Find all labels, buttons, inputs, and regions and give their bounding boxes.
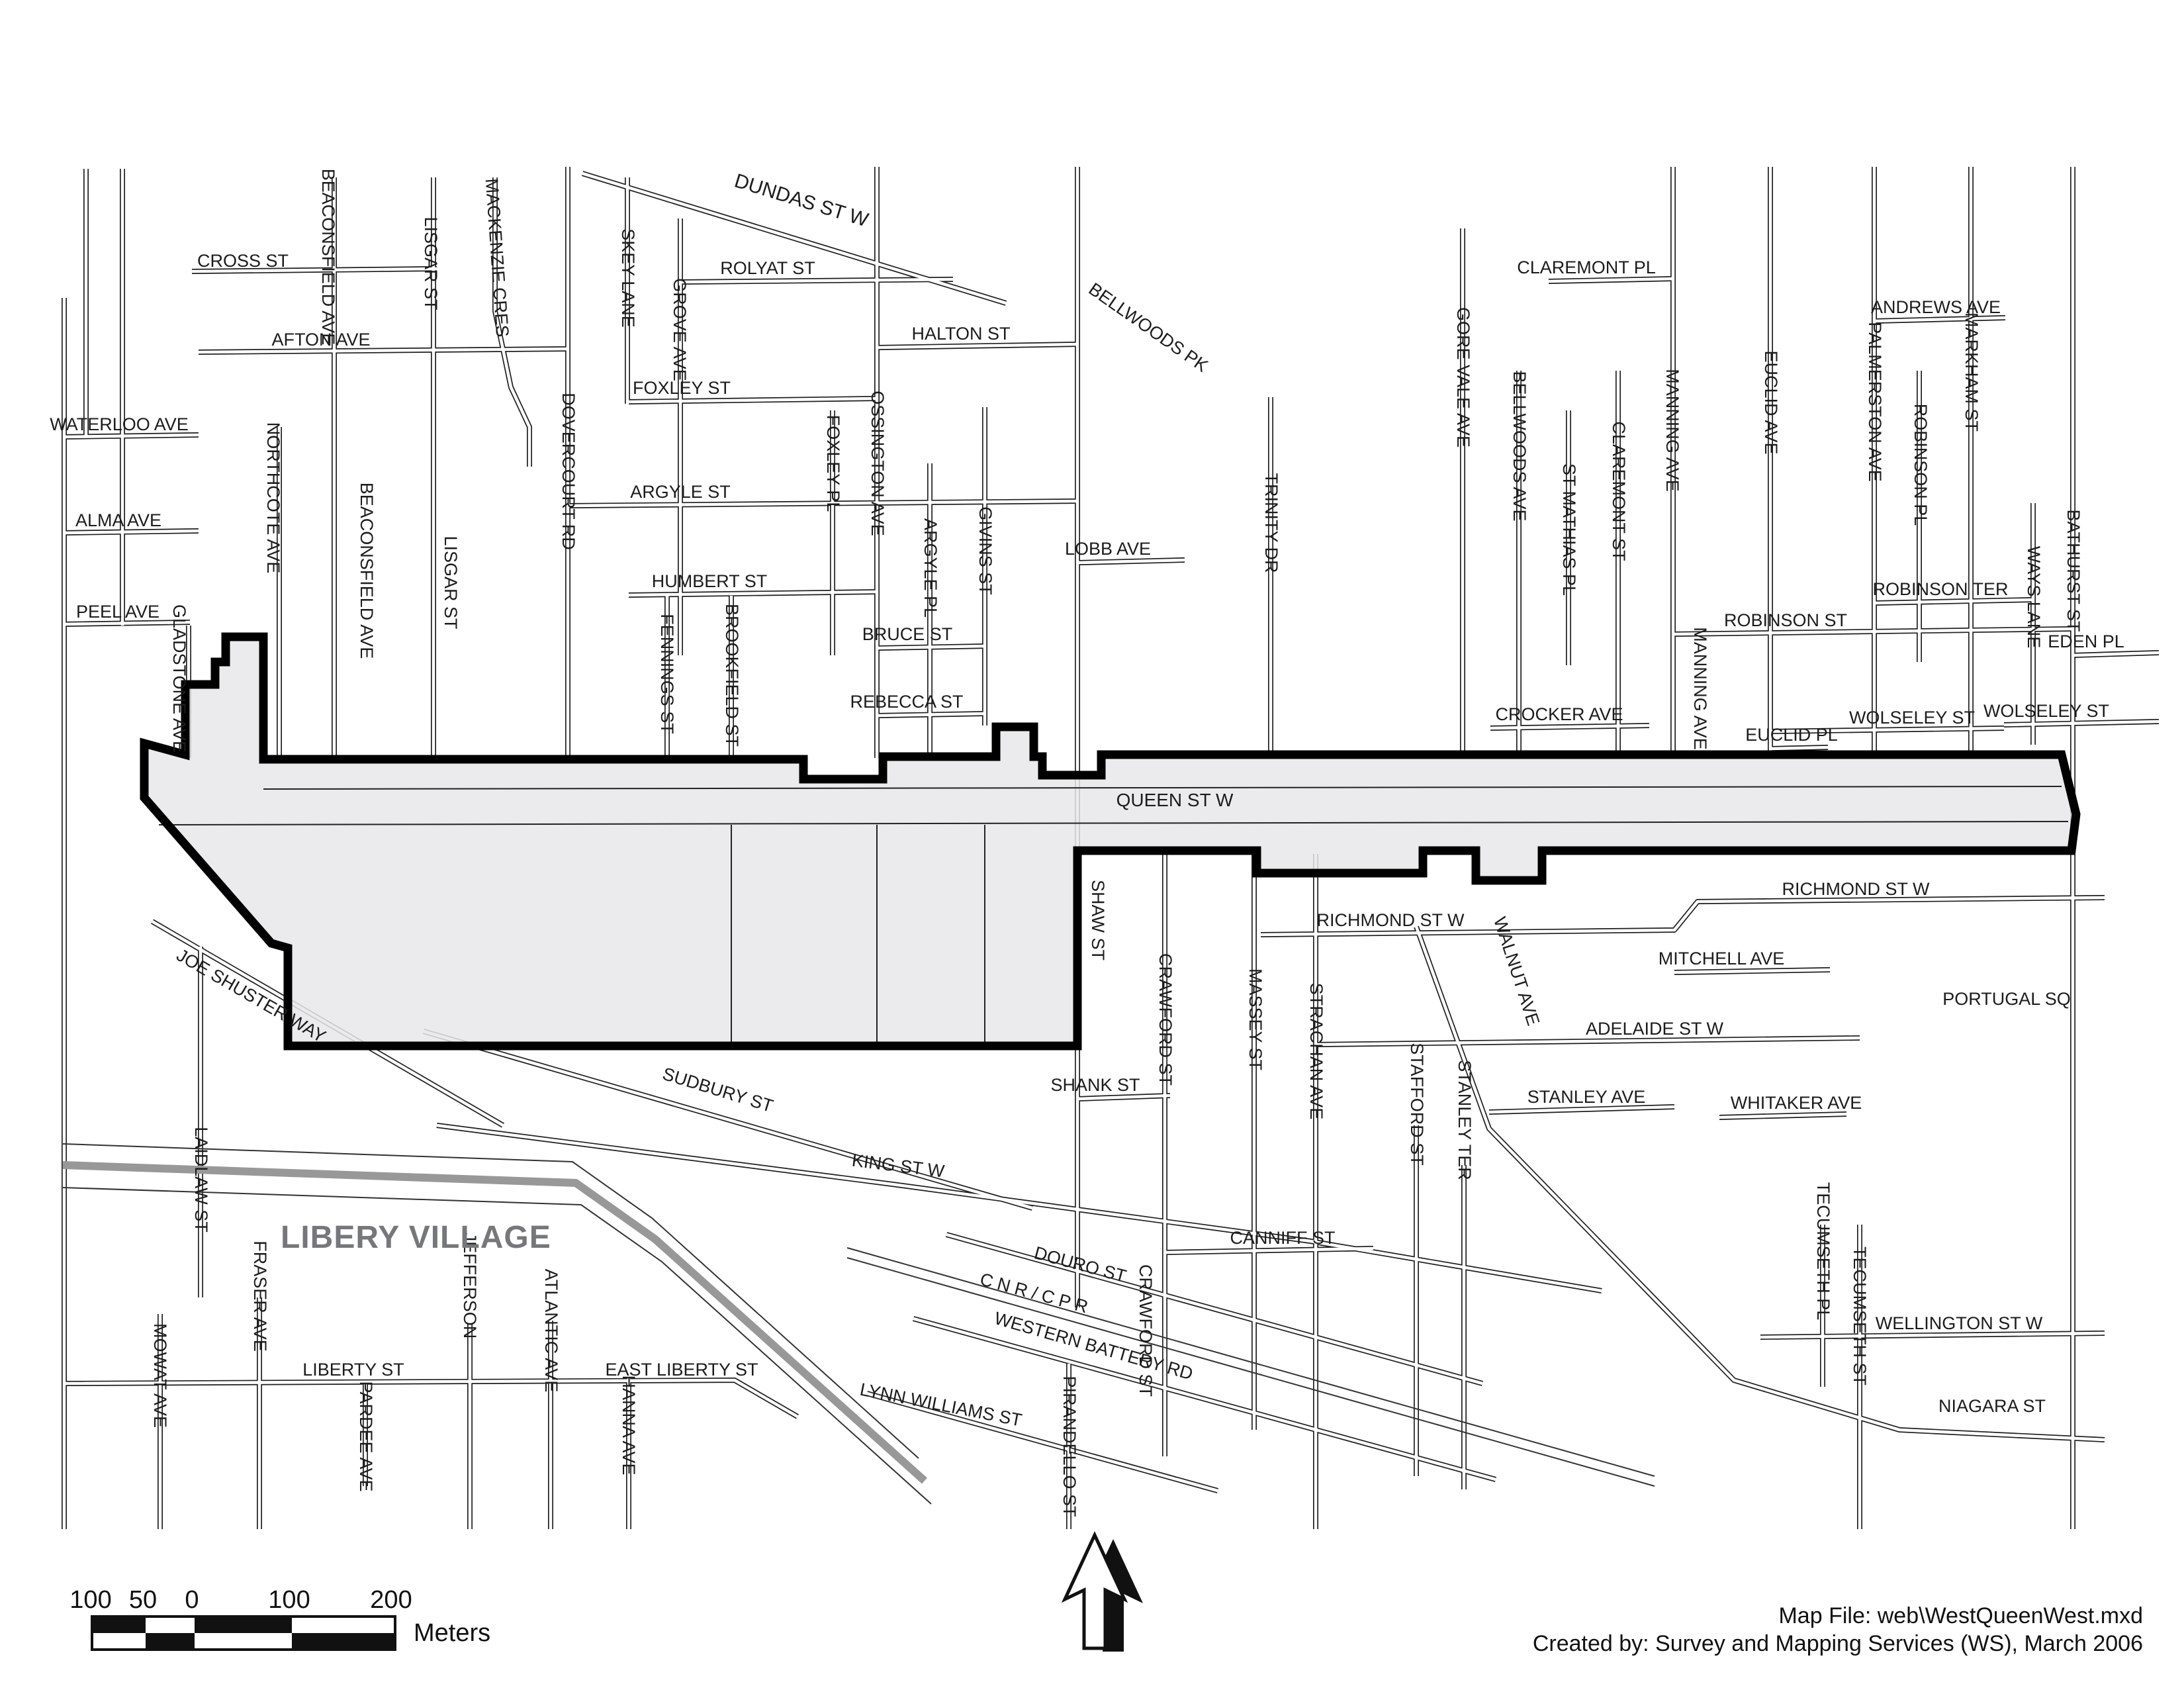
- street-label: LIBERTY ST: [302, 1360, 404, 1380]
- scale-tick-label: 200: [370, 1586, 412, 1615]
- scale-segment: [195, 1618, 292, 1633]
- street-label: LOBB AVE: [1065, 539, 1151, 559]
- street-label: LISGAR ST: [421, 216, 441, 310]
- street-label: TECUMSETH ST: [1850, 1246, 1870, 1385]
- street-label: HALTON ST: [911, 324, 1010, 344]
- street-label: BELLWOODS AVE: [1510, 371, 1529, 521]
- street-label: PORTUGAL SQ: [1942, 989, 2071, 1009]
- street-label: WOLSELEY ST: [1983, 701, 2109, 721]
- street-label: PIRANDELLO ST: [1060, 1376, 1079, 1517]
- street-label: NORTHCOTE AVE: [263, 422, 283, 574]
- street-label: LISGAR ST: [441, 536, 461, 629]
- street-label: FOXLEY ST: [633, 378, 731, 398]
- street-label: CLAREMONT ST: [1609, 421, 1629, 561]
- street-label: CLAREMONT PL: [1517, 258, 1656, 277]
- scale-bar-frame: [91, 1615, 396, 1651]
- street-label: ARGYLE PL: [921, 518, 940, 618]
- scale-segment: [146, 1633, 195, 1648]
- scale-segment: [292, 1618, 394, 1633]
- street-label: GIVINS ST: [976, 506, 995, 595]
- street-label: TRINITY DR: [1261, 473, 1281, 573]
- street-label: MOWAT AVE: [150, 1323, 170, 1428]
- scale-tick-label: 50: [129, 1586, 157, 1615]
- street-label: HUMBERT ST: [652, 571, 768, 591]
- street-label: MARKHAM ST: [1962, 312, 1981, 432]
- street-label: LAIDLAW ST: [191, 1127, 211, 1233]
- street-label: SHANK ST: [1050, 1075, 1140, 1095]
- street-label: TECUMSETH PL: [1813, 1182, 1833, 1321]
- street-label: PEEL AVE: [76, 602, 159, 622]
- map-credits: Map File: web\WestQueenWest.mxd Created …: [1533, 1602, 2143, 1658]
- street-label: ALMA AVE: [75, 510, 161, 530]
- street-label: GLADSTONE AVE: [169, 604, 189, 753]
- street-label: ANDREWS AVE: [1871, 297, 2001, 317]
- street-label: RICHMOND ST W: [1317, 910, 1465, 930]
- street-label: MANNING AVE: [1690, 627, 1710, 750]
- street-label: BROOKFIELD ST: [722, 604, 742, 747]
- street-label: ROBINSON TER: [1872, 579, 2008, 599]
- street-label: SKEY LANE: [618, 228, 638, 328]
- street-label: SHAW ST: [1088, 880, 1108, 961]
- street-label: FENNINGS ST: [657, 614, 677, 734]
- street-label: RICHMOND ST W: [1782, 879, 1931, 899]
- street-label: MASSEY ST: [1246, 968, 1265, 1070]
- district-label: LIBERY VILLAGE: [281, 1219, 545, 1256]
- road-rebecca-st: [878, 714, 986, 716]
- road-alma-ave: [63, 531, 199, 533]
- street-label: WATERLOO AVE: [50, 414, 189, 434]
- street-label: EUCLID PL: [1745, 725, 1838, 745]
- scale-tick-label: 100: [268, 1586, 310, 1615]
- street-label: WAYS LANE: [2024, 546, 2044, 649]
- street-label: ATLANTIC AVE: [541, 1269, 561, 1393]
- street-label: BRUCE ST: [862, 624, 953, 644]
- scale-segment: [195, 1633, 292, 1648]
- scale-tick-label: 100: [69, 1586, 111, 1615]
- page: TORONTO West Queen West Business Improve…: [0, 0, 2184, 1688]
- street-label: FOXLEY PL: [823, 415, 843, 512]
- street-label: STANLEY AVE: [1527, 1087, 1646, 1107]
- street-label: NIAGARA ST: [1938, 1396, 2046, 1416]
- road-bruce-st: [878, 646, 986, 648]
- street-label: CRAWFORD ST: [1156, 953, 1175, 1086]
- credit-created-by: Created by: Survey and Mapping Services …: [1533, 1630, 2143, 1658]
- road-euclid-pl: [1770, 747, 1828, 749]
- street-label: FRASER AVE: [250, 1241, 270, 1352]
- street-label: BEACONSFIELD AVE: [357, 483, 377, 659]
- credit-map-file: Map File: web\WestQueenWest.mxd: [1533, 1602, 2143, 1630]
- street-label: WOLSELEY ST: [1849, 708, 1975, 727]
- street-label: QUEEN ST W: [1116, 790, 1234, 810]
- street-label: WHITAKER AVE: [1731, 1093, 1862, 1113]
- street-label: PALMERSTON AVE: [1865, 322, 1885, 482]
- street-label: GORE VALE AVE: [1453, 307, 1473, 447]
- street-label: ST MATHIAS PL: [1559, 463, 1579, 596]
- scale-bar-unit: Meters: [414, 1619, 490, 1648]
- street-label: HANNA AVE: [619, 1375, 639, 1475]
- street-label: OSSINGTON AVE: [868, 391, 887, 536]
- street-label: REBECCA ST: [850, 692, 963, 712]
- street-label: CANNIFF ST: [1230, 1228, 1336, 1248]
- street-label: CROSS ST: [197, 251, 289, 271]
- street-label: ROBINSON ST: [1724, 610, 1847, 630]
- street-label: WELLINGTON ST W: [1876, 1313, 2043, 1333]
- road-waterloo-ave: [63, 435, 199, 437]
- scale-segment: [93, 1633, 146, 1648]
- street-label: EUCLID AVE: [1761, 350, 1781, 454]
- scale-segment: [146, 1618, 195, 1633]
- street-label: MITCHELL AVE: [1659, 949, 1785, 968]
- street-label: GROVE AVE: [670, 278, 690, 381]
- street-label: DOVERCOURT RD: [559, 393, 578, 550]
- street-label: ROBINSON PL: [1911, 404, 1931, 526]
- street-label: STAFFORD ST: [1407, 1043, 1427, 1166]
- scale-tick-label: 0: [185, 1586, 199, 1615]
- street-label: EDEN PL: [2048, 632, 2124, 651]
- street-label: ADELAIDE ST W: [1586, 1019, 1724, 1039]
- street-label: BATHURST ST: [2064, 509, 2083, 632]
- street-label: BEACONSFIELD AVE: [318, 169, 338, 346]
- scale-segment: [292, 1633, 394, 1648]
- street-label: STANLEY TER: [1455, 1060, 1475, 1180]
- street-label: PARDEE AVE: [356, 1381, 376, 1491]
- street-label: ROLYAT ST: [720, 258, 815, 278]
- street-label: MANNING AVE: [1662, 369, 1682, 492]
- street-label: CROCKER AVE: [1495, 704, 1623, 724]
- scale-segment: [93, 1618, 146, 1633]
- street-label: STRACHAN AVE: [1306, 983, 1326, 1120]
- map-canvas: CROSS STAFTON AVEWATERLOO AVEALMA AVEPEE…: [0, 0, 2184, 1688]
- street-label: ARGYLE ST: [630, 482, 731, 502]
- street-label: CRAWFORD ST: [1136, 1264, 1156, 1397]
